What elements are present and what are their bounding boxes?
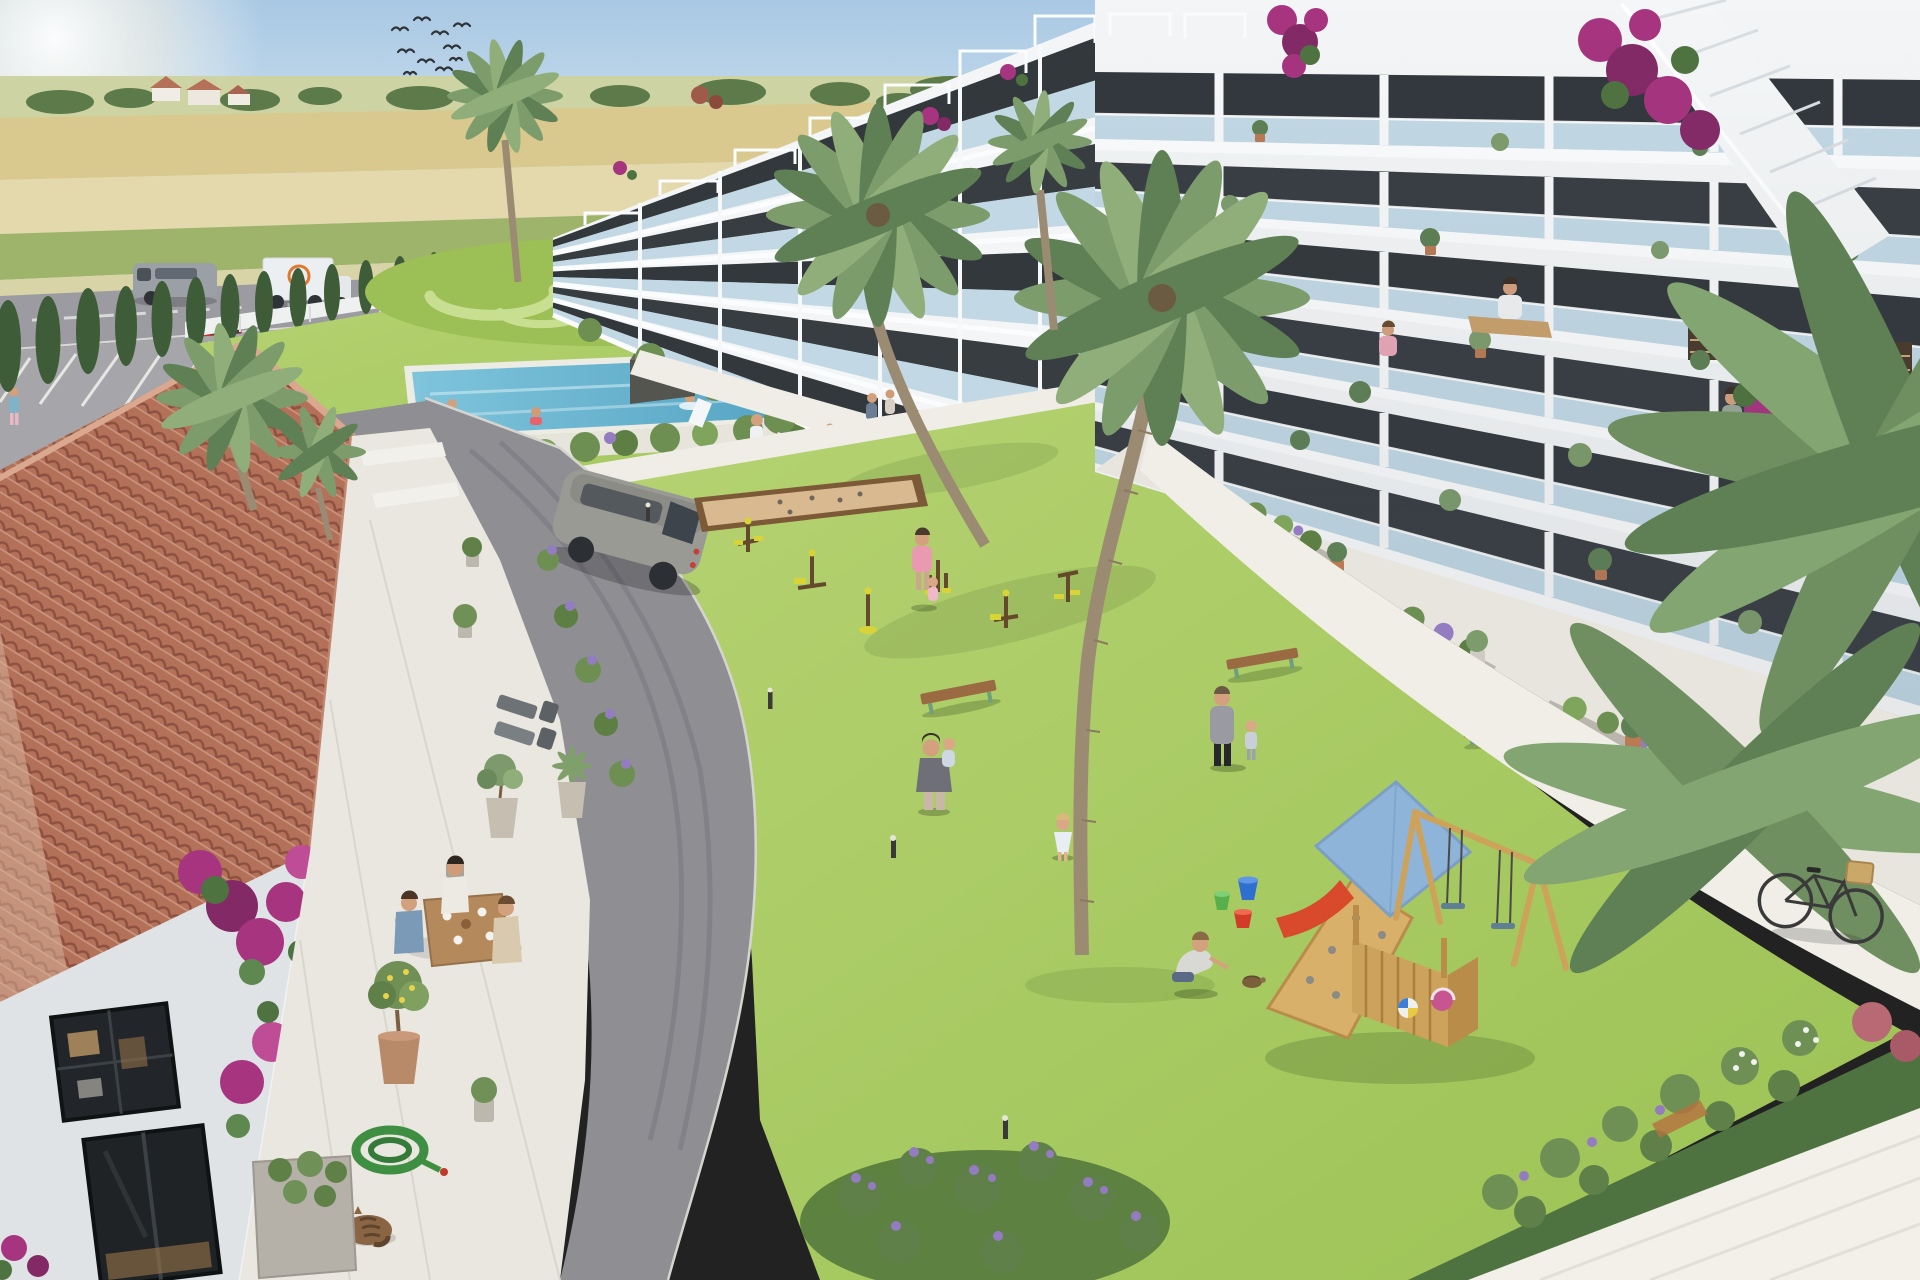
clubhouse-window-2 [83,1125,220,1280]
terrace-pot-large [471,1077,497,1122]
render-canvas [0,0,1920,1280]
clubhouse-window-1 [51,1003,179,1120]
planter-trough [253,1151,356,1278]
